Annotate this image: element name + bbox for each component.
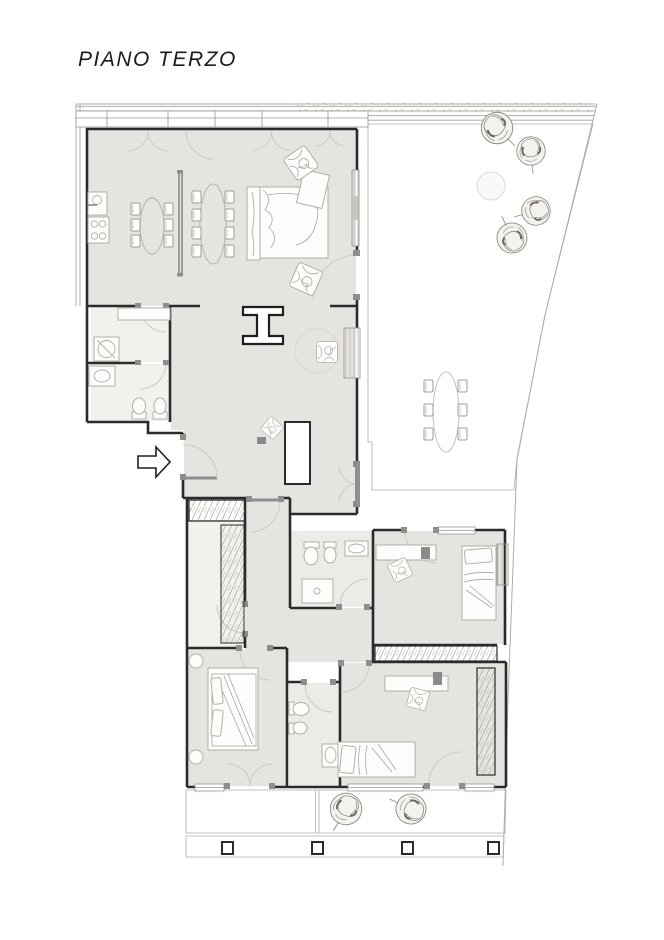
desk-item	[433, 672, 442, 685]
balcony-posts	[222, 842, 499, 854]
toilet	[304, 547, 318, 565]
pillow	[464, 548, 492, 564]
pillow	[211, 710, 224, 737]
shower	[302, 579, 333, 603]
laundry-counter	[118, 308, 170, 320]
floor-corridor	[245, 498, 290, 648]
floor-bathroom-3	[289, 683, 339, 786]
bidet	[324, 547, 336, 563]
tree-icon	[491, 216, 532, 257]
console-item	[257, 437, 266, 444]
bidet	[154, 398, 166, 414]
toilet	[133, 398, 146, 414]
wardrobe-closet	[221, 525, 244, 643]
terrace-dining	[424, 372, 467, 452]
hall-east-shelf	[344, 328, 360, 378]
wardrobe-entry	[189, 500, 245, 521]
stove	[88, 217, 109, 243]
outdoor-table	[433, 372, 459, 452]
skylight-circle	[477, 172, 505, 200]
pillow	[211, 678, 224, 705]
desk-chair	[317, 342, 338, 363]
toilet	[293, 703, 309, 716]
tree-icon	[510, 131, 553, 174]
floor-plan-canvas	[0, 0, 664, 940]
facade-window-band	[76, 111, 368, 127]
entrance-arrow	[138, 447, 170, 477]
shaft	[285, 422, 310, 484]
tree-icon	[325, 790, 366, 831]
bidet	[293, 722, 307, 734]
desk-item	[421, 547, 430, 559]
wardrobe-se	[477, 668, 495, 775]
pillow	[339, 745, 356, 773]
nightstand	[189, 750, 203, 764]
tree-icon	[389, 788, 430, 829]
wardrobe-ne	[375, 646, 497, 661]
window-bump	[497, 544, 508, 585]
kitchen	[88, 192, 109, 243]
nightstand	[189, 654, 203, 668]
sink-counter	[89, 366, 115, 386]
